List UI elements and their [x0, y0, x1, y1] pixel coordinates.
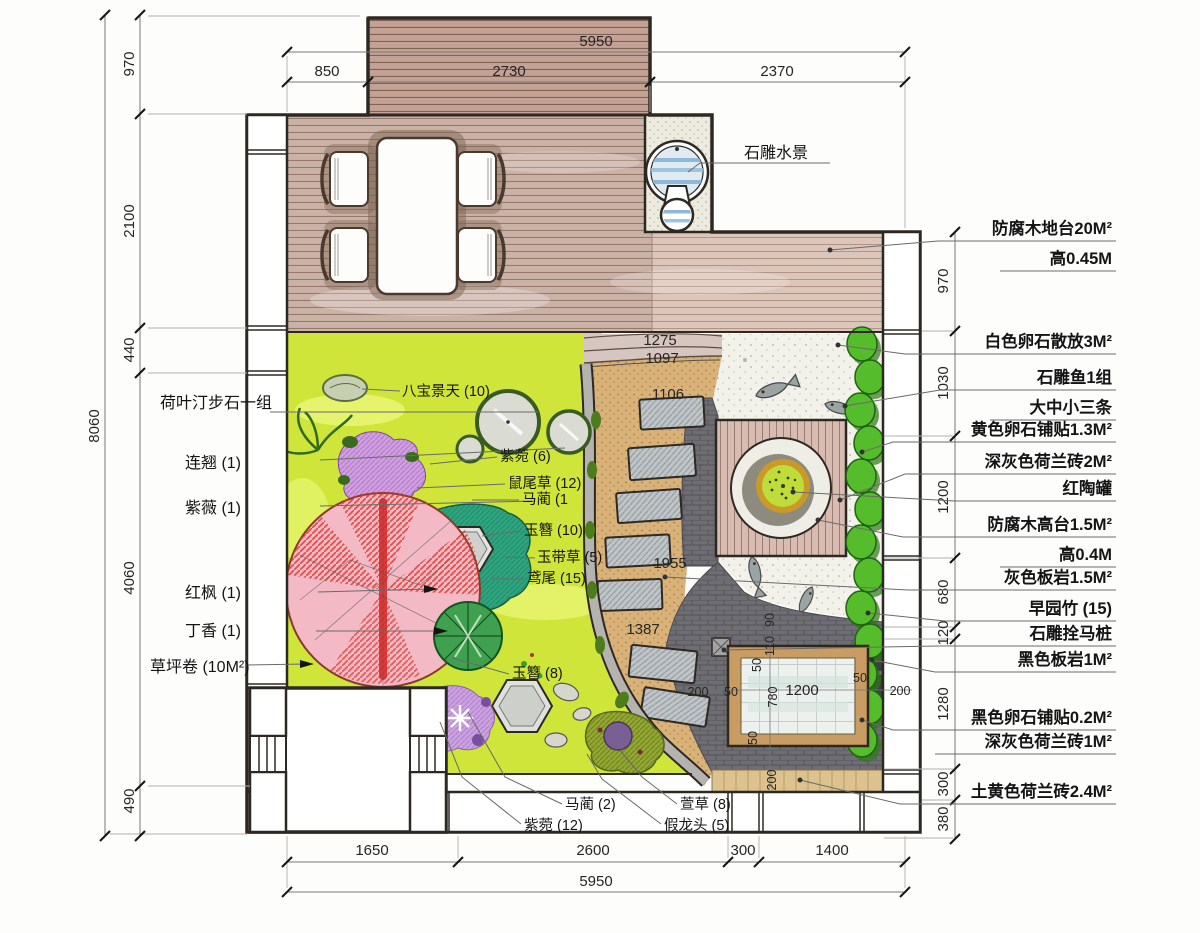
right-annotation-black-pebbles: 黑色卵石铺贴0.2M²	[971, 707, 1113, 727]
plant-label-hosta10: 玉簪 (10)	[524, 522, 583, 539]
stone-water-feature	[645, 115, 712, 232]
plant-label-ribbon-grass: 玉带草 (5)	[537, 549, 602, 566]
dim-right-120: 120	[935, 620, 952, 645]
right-annotation-tan-dutch-brick: 土黄色荷兰砖2.4M²	[971, 781, 1113, 801]
plant-label-aster6: 紫菀 (6)	[500, 448, 551, 465]
dim-right-1030: 1030	[935, 366, 952, 399]
dim-pool-1200: 1200	[785, 682, 818, 699]
right-annotation-bamboo: 早园竹 (15)	[1029, 598, 1112, 618]
right-annotation-white-pebbles: 白色卵石散放3M²	[985, 331, 1113, 351]
dim-pool-50-top: 50	[750, 658, 764, 672]
water-feature-label: 石雕水景	[744, 144, 808, 162]
dim-left-490: 490	[121, 788, 138, 813]
tan-brick-band	[712, 770, 883, 792]
right-annotation-grey-slate: 灰色板岩1.5M²	[1004, 567, 1113, 587]
dim-pool-50-bottom: 50	[746, 731, 760, 745]
right-annotation-platform-height: 高0.4M	[1059, 544, 1112, 564]
plant-label-hosta8: 玉簪 (8)	[512, 665, 563, 682]
plant-label-sedum: 八宝景天 (10)	[402, 383, 490, 400]
left-label-crape-myrtle: 紫薇 (1)	[185, 499, 241, 517]
dim-right-1200: 1200	[935, 480, 952, 513]
plant-label-false-dragonhead: 假龙头 (5)	[664, 817, 729, 834]
plant-label-iris2: 马蔺 (2)	[565, 796, 616, 813]
dim-inner-1275: 1275	[643, 332, 676, 349]
green-round-plant	[434, 602, 502, 670]
dim-top-2370: 2370	[760, 63, 793, 80]
small-stone	[545, 733, 567, 747]
dim-inner-1387: 1387	[626, 621, 659, 638]
right-wall-strip	[883, 232, 920, 832]
small-shrub	[323, 375, 367, 401]
plant-label-aster12: 紫菀 (12)	[524, 817, 583, 834]
dim-bottom-2600: 2600	[576, 842, 609, 859]
dim-right-300: 300	[935, 771, 952, 796]
dim-left-total: 8060	[86, 409, 103, 442]
right-annotation-stone-fish: 石雕鱼1组	[1036, 367, 1113, 387]
left-label-stepping-stones: 荷叶汀步石一组	[160, 394, 272, 412]
left-label-red-maple: 红枫 (1)	[185, 584, 241, 602]
dining-table	[377, 138, 457, 294]
dim-left-440: 440	[121, 337, 138, 362]
left-label-lilac: 丁香 (1)	[185, 622, 241, 640]
garden-plan-page: 5950 850 2730 2370 8060 970 2100 440 406…	[0, 0, 1200, 933]
right-annotation-deck-height: 高0.45M	[1050, 248, 1112, 268]
dim-left-970: 970	[121, 51, 138, 76]
dim-inner-1955: 1955	[653, 555, 686, 572]
right-annotation-grey-dutch-brick: 深灰色荷兰砖2M²	[985, 451, 1113, 471]
dim-pool-50-left: 50	[724, 685, 738, 699]
dim-pool-50-right: 50	[853, 671, 867, 685]
dim-pool-200-left: 200	[688, 685, 709, 699]
right-annotation-hitching-post: 石雕拴马桩	[1029, 623, 1113, 643]
dim-right-970: 970	[935, 268, 952, 293]
left-label-lawn: 草坪卷 (10M²)	[150, 658, 250, 676]
plant-label-daylily: 萱草 (8)	[680, 796, 731, 813]
wood-platform	[716, 420, 846, 556]
chair	[322, 220, 376, 290]
dim-right-1280: 1280	[935, 687, 952, 720]
plant-label-sage: 鼠尾草 (12)	[508, 475, 581, 492]
dim-pool-90: 90	[763, 613, 777, 627]
dim-left-4060: 4060	[121, 561, 138, 594]
dim-top-850: 850	[314, 63, 339, 80]
fountain-gourd-body	[661, 199, 693, 231]
dim-pool-200-right: 200	[890, 684, 911, 698]
plant-label-iris15: 鸢尾 (15)	[527, 570, 586, 587]
right-annotation-red-pot: 红陶罐	[1063, 478, 1113, 498]
dim-right-680: 680	[935, 579, 952, 604]
bottom-left-structure	[250, 688, 446, 832]
dim-top-2730: 2730	[492, 63, 525, 80]
right-annotation-black-slate: 黑色板岩1M²	[1018, 649, 1113, 669]
dim-bottom-1400: 1400	[815, 842, 848, 859]
chair	[322, 144, 376, 214]
dim-bottom-300: 300	[730, 842, 755, 859]
dim-inner-1106: 1106	[652, 386, 684, 403]
dim-left-2100: 2100	[121, 204, 138, 237]
dim-bottom-total: 5950	[579, 873, 612, 890]
dim-inner-1097: 1097	[645, 350, 678, 367]
garden-plan-drawing: 5950 850 2730 2370 8060 970 2100 440 406…	[0, 0, 1200, 933]
right-annotation-grey-dutch-brick-2: 深灰色荷兰砖1M²	[985, 731, 1113, 751]
dim-bottom-1650: 1650	[355, 842, 388, 859]
right-annotation-wood-platform: 防腐木高台1.5M²	[987, 514, 1112, 534]
dim-pool-110: 110	[763, 636, 777, 656]
right-annotation-deck: 防腐木地台20M²	[992, 218, 1113, 238]
plant-label-iris-lactea: 马蔺 (1	[522, 491, 568, 508]
dim-top-total: 5950	[579, 33, 612, 50]
right-annotation-yellow-pebbles: 黄色卵石铺贴1.3M²	[971, 419, 1113, 439]
left-label-forsythia: 连翘 (1)	[185, 454, 241, 472]
dim-right-380: 380	[935, 806, 952, 831]
right-annotation-fish-sizes: 大中小三条	[1030, 397, 1113, 417]
dim-pool-780: 780	[766, 687, 780, 708]
false-dragonhead-clump	[604, 722, 632, 750]
dim-pool-200-bottom: 200	[765, 770, 779, 791]
